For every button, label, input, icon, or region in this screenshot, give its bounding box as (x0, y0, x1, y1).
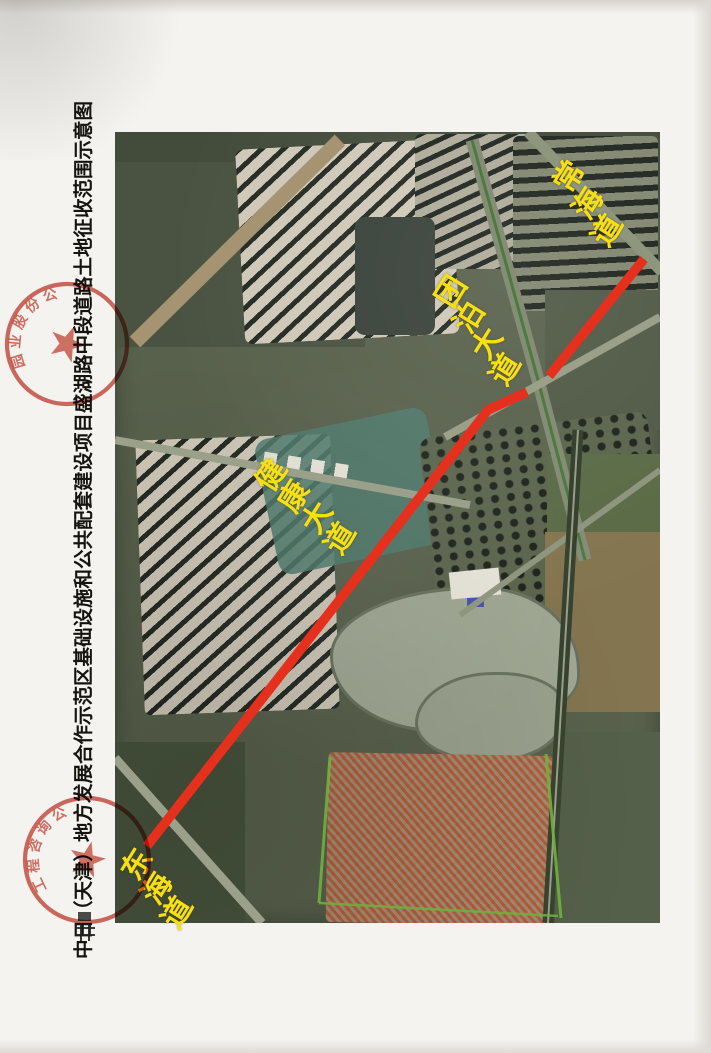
satellite-map-image (115, 132, 660, 923)
page-title: 中日（天津）地方发展合作示范区基础设施和公共配套建设项目盛湖路中段道路土地征收范… (67, 107, 96, 959)
map-tonal-overlay (115, 132, 660, 923)
paper-edge-shadow-top (0, 0, 711, 14)
paper-edge-shadow-right (693, 0, 711, 1053)
paper-edge-shadow-bottom (0, 1039, 711, 1053)
scanned-page: 中日（天津）地方发展合作示范区基础设施和公共配套建设项目盛湖路中段道路土地征收范… (0, 0, 711, 1053)
